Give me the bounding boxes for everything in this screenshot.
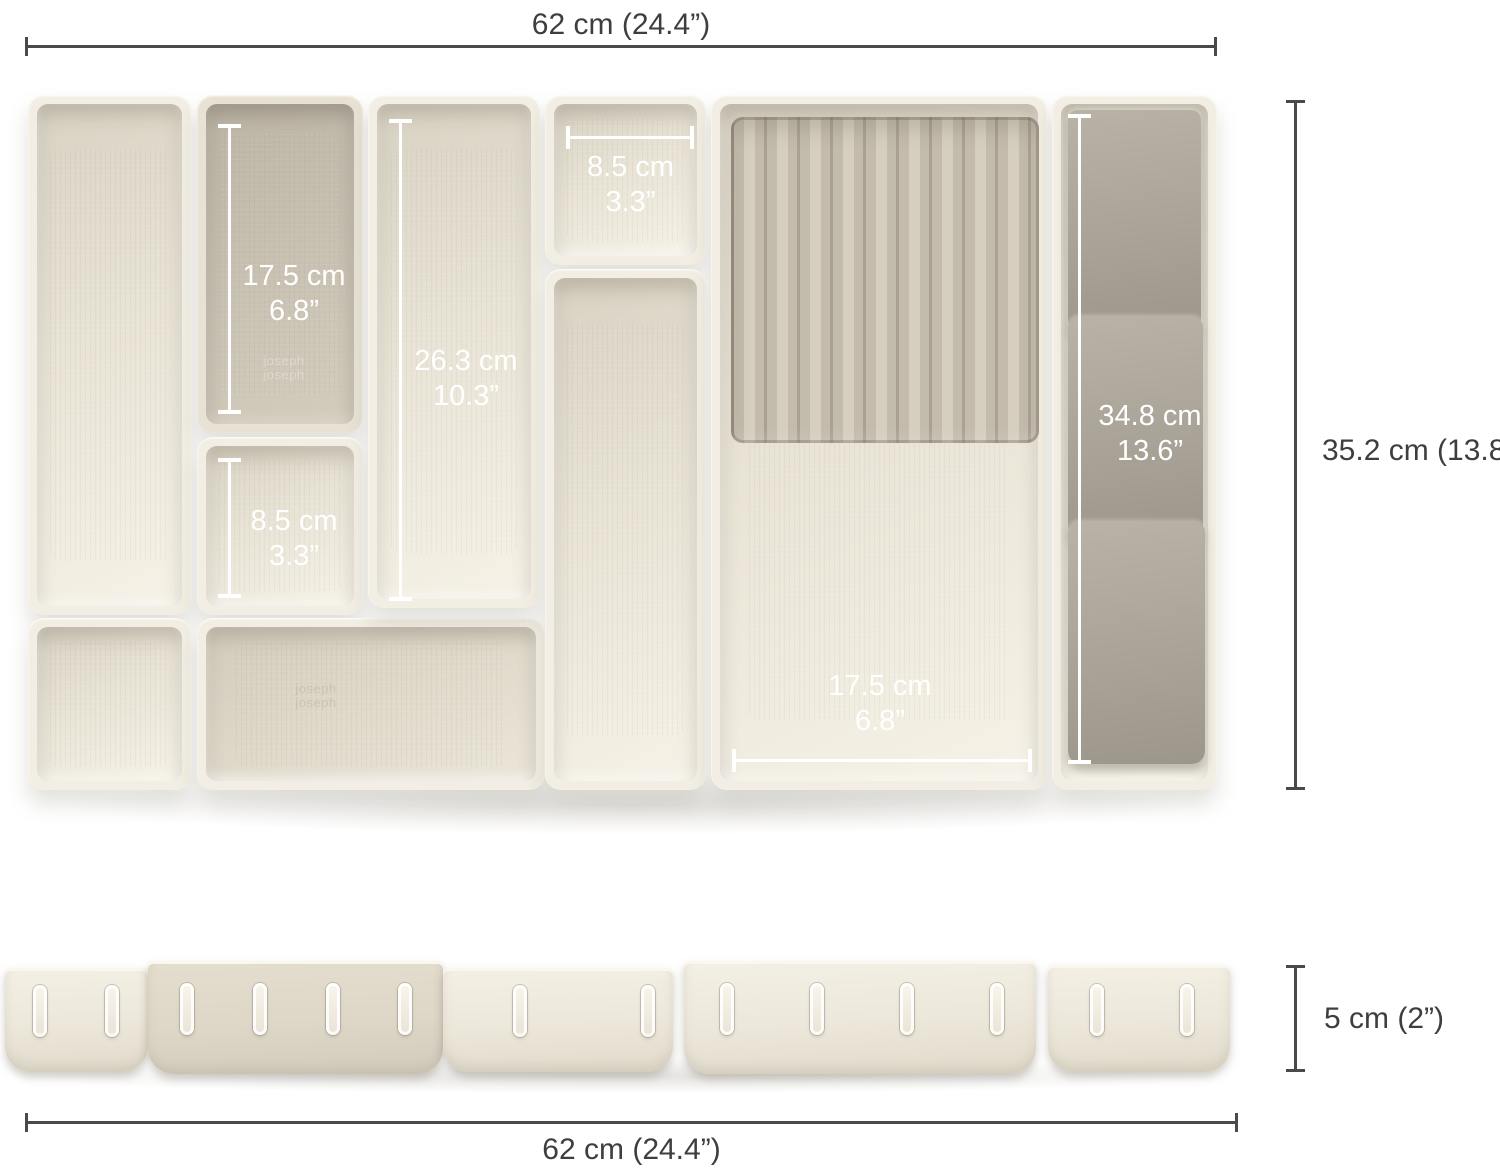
brand-embossing: joseph joseph <box>254 354 314 383</box>
slot <box>253 983 267 1035</box>
tray-square-left: 8.5 cm 3.3” <box>197 437 363 615</box>
square-top-label: 8.5 cm 3.3” <box>558 150 703 221</box>
square-left-label-cm: 8.5 cm <box>250 505 337 537</box>
long-tray-label: 26.3 cm 10.3” <box>399 344 533 415</box>
overall-height-label: 35.2 cm (13.8”) <box>1322 434 1500 468</box>
tray-bottom-wide-well: joseph joseph <box>206 627 536 781</box>
slot <box>105 985 119 1037</box>
tray-middle-tall <box>545 269 706 790</box>
long-tray-label-inch: 10.3” <box>433 380 499 412</box>
tray-left-small-well <box>37 627 182 781</box>
tray-square-left-well: 8.5 cm 3.3” <box>206 446 354 606</box>
knife-store-label: 34.8 cm 13.6” <box>1089 399 1211 470</box>
top-width-dimension-line <box>25 45 1217 48</box>
tray-knife-store-well: 34.8 cm 13.6” <box>1061 104 1208 781</box>
tray-depth-label: 5 cm (2”) <box>1324 1002 1444 1036</box>
side-tray-4 <box>684 961 1036 1074</box>
large-tray-label: 17.5 cm 6.8” <box>732 669 1028 740</box>
slot <box>1090 984 1104 1036</box>
tray-knife-store: 34.8 cm 13.6” <box>1052 95 1217 790</box>
square-top-label-cm: 8.5 cm <box>587 151 674 183</box>
slot <box>326 983 340 1035</box>
slot <box>810 983 824 1035</box>
slot <box>900 983 914 1035</box>
tray-long-well: 26.3 cm 10.3” <box>377 104 531 599</box>
long-tray-label-cm: 26.3 cm <box>414 345 517 377</box>
tray-left-small <box>28 618 191 790</box>
side-tray-3 <box>443 968 673 1072</box>
tray-long: 26.3 cm 10.3” <box>368 95 540 608</box>
slot <box>33 985 47 1037</box>
tray-divider-taupe: 17.5 cm 6.8” joseph joseph <box>197 95 363 433</box>
square-left-label: 8.5 cm 3.3” <box>224 504 364 575</box>
side-tray-5 <box>1048 965 1230 1072</box>
tray-square-top-well: 8.5 cm 3.3” <box>554 104 697 256</box>
divider-tray-label-cm: 17.5 cm <box>242 260 345 292</box>
slot <box>513 985 527 1037</box>
tray-square-top: 8.5 cm 3.3” <box>545 95 706 265</box>
side-tray-1 <box>5 968 148 1072</box>
tray-bottom-wide: joseph joseph <box>197 618 545 790</box>
knife-store-label-cm: 34.8 cm <box>1098 400 1201 432</box>
side-tray-2 <box>148 961 443 1074</box>
tray-left-tall <box>28 95 191 615</box>
slot <box>990 983 1004 1035</box>
bottom-width-dimension-line <box>25 1121 1238 1124</box>
tray-middle-tall-well <box>554 278 697 781</box>
top-width-label: 62 cm (24.4”) <box>25 8 1217 42</box>
tray-left-tall-well <box>37 104 182 606</box>
slot <box>641 985 655 1037</box>
large-tray-label-inch: 6.8” <box>855 705 905 737</box>
slot <box>1180 984 1194 1036</box>
knife-flap-1 <box>1068 110 1201 332</box>
divider-tray-label: 17.5 cm 6.8” <box>224 259 364 330</box>
tray-large: 17.5 cm 6.8” <box>711 95 1047 790</box>
cutlery-insert-ribbed <box>731 117 1039 443</box>
brand-embossing: joseph joseph <box>286 682 346 711</box>
square-top-label-inch: 3.3” <box>606 186 656 218</box>
slot <box>398 983 412 1035</box>
square-left-label-inch: 3.3” <box>269 540 319 572</box>
overall-height-dimension-line <box>1294 100 1297 790</box>
square-top-dimension-line <box>566 136 694 139</box>
tray-depth-dimension-line <box>1294 965 1297 1072</box>
divider-tray-label-inch: 6.8” <box>269 295 319 327</box>
large-tray-dimension-line <box>732 759 1032 762</box>
tray-divider-taupe-well: 17.5 cm 6.8” joseph joseph <box>206 104 354 424</box>
knife-store-label-inch: 13.6” <box>1117 435 1183 467</box>
knife-store-dimension-line <box>1078 114 1081 764</box>
slot <box>180 983 194 1035</box>
product-dimension-diagram: 62 cm (24.4”) 35.2 cm (13.8”) 5 cm (2”) … <box>0 0 1500 1172</box>
slot <box>720 983 734 1035</box>
knife-flap-3 <box>1068 522 1205 764</box>
bottom-width-label: 62 cm (24.4”) <box>25 1133 1238 1167</box>
tray-large-well: 17.5 cm 6.8” <box>720 104 1038 781</box>
large-tray-label-cm: 17.5 cm <box>828 670 931 702</box>
